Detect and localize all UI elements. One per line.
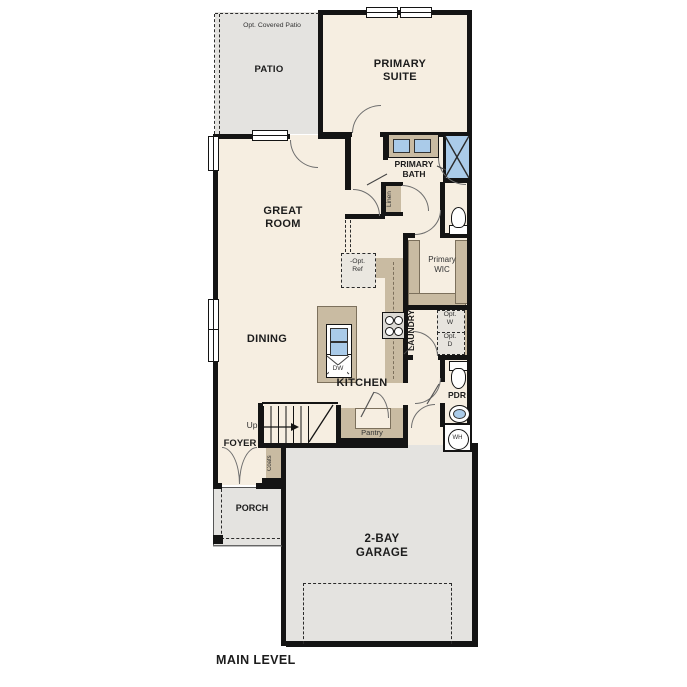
burner-icon bbox=[385, 327, 394, 336]
island-sink-basin-1 bbox=[330, 328, 348, 342]
pdr-sink-basin bbox=[453, 409, 466, 419]
vanity-sink-right bbox=[414, 139, 431, 153]
vanity-sink-left bbox=[393, 139, 410, 153]
primary-bath-label: PRIMARY BATH bbox=[388, 159, 440, 180]
cased-opening-dash-1 bbox=[345, 220, 346, 252]
burner-icon bbox=[394, 327, 403, 336]
burner-icon bbox=[385, 316, 394, 325]
dining-label: DINING bbox=[238, 333, 296, 346]
pdr-label: PDR bbox=[442, 390, 472, 400]
wall-left-exterior-b bbox=[213, 169, 218, 299]
window-greatroom-left bbox=[208, 136, 219, 171]
wall-left-exterior-c bbox=[213, 360, 218, 487]
stairs-treads bbox=[263, 406, 311, 443]
window-suite-2 bbox=[400, 7, 432, 18]
range bbox=[382, 312, 405, 339]
porch-label: PORCH bbox=[228, 503, 276, 514]
great-room-label: GREAT ROOM bbox=[252, 205, 314, 232]
garage-door-dashed bbox=[303, 583, 452, 644]
window-dining-left-1 bbox=[208, 299, 219, 332]
opt-ref-label: -Opt. Ref bbox=[341, 258, 374, 275]
wall-greatroom-top-a bbox=[216, 134, 252, 139]
foyer-label: FOYER bbox=[218, 438, 262, 450]
wall-garage-left bbox=[281, 443, 286, 646]
primary-suite-label: PRIMARY SUITE bbox=[366, 58, 434, 85]
linen-label: Linen bbox=[387, 187, 400, 211]
porch-dashed-left bbox=[221, 489, 222, 539]
wall-patio-divider bbox=[318, 12, 323, 139]
wall-garage-top-a bbox=[286, 443, 408, 448]
primary-wic-label: Primary WIC bbox=[416, 255, 468, 275]
opt-washer-label: Opt. W bbox=[437, 311, 463, 328]
wall-coats-bottom bbox=[262, 478, 286, 483]
coats-label: Coats bbox=[267, 449, 280, 477]
wall-foyer-bottom-b bbox=[256, 483, 283, 489]
wall-coats-top bbox=[262, 443, 286, 448]
wall-linen-bottom bbox=[381, 212, 403, 216]
wall-toilet-nook-left bbox=[440, 182, 445, 235]
wall-garage-right bbox=[472, 443, 478, 646]
porch-column bbox=[213, 535, 223, 544]
pdr-toilet-bowl bbox=[451, 368, 466, 389]
patio-dashed-left-inner bbox=[219, 14, 220, 134]
opt-dryer-label: Opt. D bbox=[437, 333, 463, 350]
patio-dashed-left-outer bbox=[214, 14, 215, 134]
window-suite-1 bbox=[366, 7, 398, 18]
patio-dashed-top bbox=[215, 13, 319, 14]
plan-title: MAIN LEVEL bbox=[216, 653, 326, 668]
kitchen-label: KITCHEN bbox=[332, 377, 392, 390]
window-dining-left-2 bbox=[208, 329, 219, 362]
bath-toilet-bowl bbox=[451, 207, 466, 228]
wall-pantry-bottom bbox=[336, 438, 408, 443]
garage-label: 2-BAY GARAGE bbox=[343, 532, 421, 560]
wh-label: WH bbox=[448, 435, 467, 442]
porch-dashed-bottom bbox=[221, 538, 280, 539]
burner-icon bbox=[394, 316, 403, 325]
up-label: Up bbox=[243, 420, 261, 430]
window-greatroom-top bbox=[252, 130, 288, 141]
pantry-label: Pantry bbox=[341, 428, 403, 437]
opt-covered-patio-label: Opt. Covered Patio bbox=[227, 22, 317, 30]
patio-label: PATIO bbox=[237, 64, 301, 76]
dw-label: DW bbox=[329, 365, 347, 373]
wall-stairs-rail bbox=[262, 402, 338, 404]
wall-greatroom-right bbox=[345, 135, 351, 190]
island-sink-basin-2 bbox=[330, 342, 348, 356]
floor-plan: Opt. Covered Patio PATIO PRIMARY SUITE P… bbox=[0, 0, 687, 687]
laundry-label: LAUNDRY bbox=[407, 301, 422, 359]
cased-opening-dash-2 bbox=[350, 220, 351, 252]
wall-linen-top bbox=[381, 182, 403, 186]
